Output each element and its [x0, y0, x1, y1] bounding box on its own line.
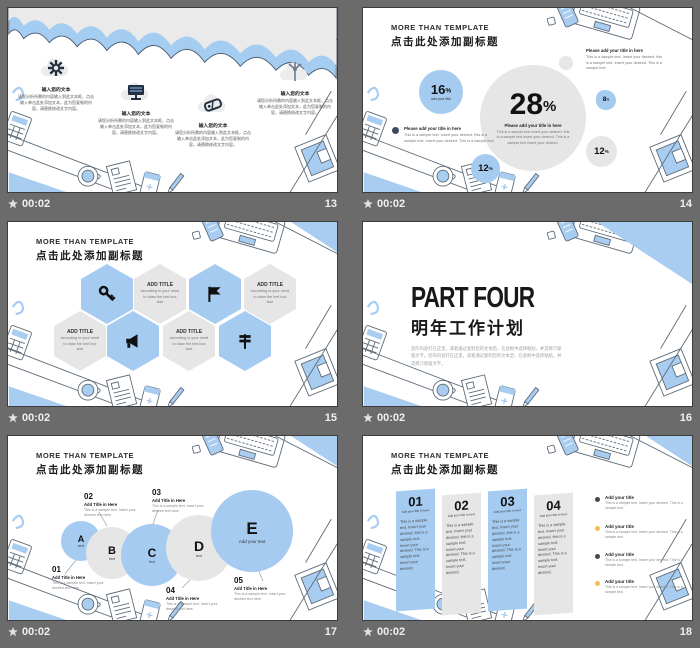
- slide-cell-16: PART FOUR 明年工作计划 您的内容打在这里，或者通过复制您的文本后，在此…: [362, 221, 693, 427]
- slide-sorter-grid: 输入您的文本 请您分析所需的内容输入到此文本框，点击输入单击此处添加文本，此为您…: [0, 0, 700, 648]
- timeline-label-01: 01 Add Title in Here This is a sample te…: [52, 565, 116, 592]
- stat-unit: %: [543, 98, 556, 115]
- slide-thumbnail-16[interactable]: PART FOUR 明年工作计划 您的内容打在这里，或者通过复制您的文本后，在此…: [362, 221, 693, 407]
- column-number: 02: [446, 498, 477, 513]
- slide-number: 18: [680, 626, 692, 638]
- circle-label: text: [109, 557, 115, 561]
- timeline-label-03: 03 Add Title in Here This is a sample te…: [152, 488, 216, 515]
- bullet-label: Add your title: [605, 579, 687, 584]
- hex-body: according to your need to draw the text …: [140, 289, 180, 306]
- decorative-circle: [559, 56, 573, 70]
- timeline-label-04: 04 Add Title in Here This is a sample te…: [166, 586, 230, 613]
- slide-meta: 00:02 17: [7, 621, 338, 641]
- slide-title-block: MORE THAN TEMPLATE 点击此处添加副标题: [391, 451, 499, 477]
- slide-cell-18: MORE THAN TEMPLATE 点击此处添加副标题 01 Add your…: [362, 435, 693, 641]
- text-block-left: Please add your title in here This is a …: [404, 126, 496, 144]
- slide-timing: 00:02: [22, 626, 50, 638]
- step-label: Add Title in Here: [152, 498, 216, 503]
- column-04: 04 Add your title in here This is a samp…: [534, 493, 573, 616]
- slide-meta: 00:02 15: [7, 407, 338, 427]
- stat-value: 28: [510, 88, 543, 121]
- stat-body: This is a sample text insert your desire…: [495, 130, 571, 147]
- signpost-icon: [236, 332, 254, 350]
- slide-number: 13: [325, 198, 337, 210]
- circle-label: text: [196, 554, 202, 558]
- hex-body: according to your need to draw the text …: [60, 336, 100, 353]
- wind-turbine-icon: [278, 60, 312, 84]
- stat-value: 16: [431, 82, 445, 97]
- step-number: 03: [152, 488, 216, 497]
- slide-title: MORE THAN TEMPLATE: [36, 451, 144, 460]
- column-subtitle: Add your title in here: [538, 512, 569, 518]
- slide-timing: 00:02: [377, 626, 405, 638]
- block-heading: Please add your title in here: [404, 126, 496, 131]
- stat-circle-28: 28% Please add your title in here This i…: [480, 65, 586, 171]
- stat-circle-12-gray: 12%: [586, 136, 617, 167]
- column-01: 01 Add your title in here This is a samp…: [396, 489, 435, 612]
- slide-timing: 00:02: [377, 198, 405, 210]
- column-subtitle: Add your title in here: [492, 508, 523, 514]
- section-title: PART FOUR: [411, 284, 534, 313]
- timeline-label-02: 02 Add Title in Here This is a sample te…: [84, 492, 148, 519]
- step-body: This is a sample text. Insert your desir…: [84, 508, 148, 519]
- corner-triangle: [291, 222, 337, 252]
- hex-body: according to your need to draw the text …: [250, 289, 290, 306]
- column-number: 01: [400, 494, 431, 509]
- slide-cell-13: 输入您的文本 请您分析所需的内容输入到此文本框，点击输入单击此处添加文本，此为您…: [7, 7, 338, 213]
- column-subtitle: Add your title in here: [446, 512, 477, 518]
- slide-thumbnail-18[interactable]: MORE THAN TEMPLATE 点击此处添加副标题 01 Add your…: [362, 435, 693, 621]
- slide-title: MORE THAN TEMPLATE: [36, 237, 144, 246]
- step-body: This is a sample text. Insert your desir…: [52, 581, 116, 592]
- circle-letter: A: [78, 534, 85, 544]
- slide-subtitle: 点击此处添加副标题: [36, 248, 144, 263]
- column-body: This is a sample text. Insert your desir…: [446, 522, 477, 577]
- stat-circle-12-blue: 12%: [471, 154, 500, 183]
- feature-item: 输入您的文本 请您分析所需的内容输入到此文本框，点击输入单击此处添加文本，此为您…: [257, 60, 333, 116]
- circle-label: Add your text: [239, 539, 266, 544]
- slide-timing: 00:02: [22, 198, 50, 210]
- column-subtitle: Add your title in here: [400, 508, 431, 514]
- bullet-label: Add your title: [605, 495, 687, 500]
- bullet-body: This is a sample text. Insert your desir…: [605, 585, 687, 596]
- slide-subtitle: 点击此处添加副标题: [391, 462, 499, 477]
- feature-item: 输入您的文本 请您分析所需的内容输入到此文本框，点击输入单击此处添加文本，此为您…: [18, 56, 94, 112]
- stat-unit: %: [489, 167, 493, 172]
- block-body: This is a sample text. Insert your desir…: [586, 55, 664, 72]
- bullet-item-2: Add your title This is a sample text. In…: [605, 524, 687, 541]
- slide-cell-17: MORE THAN TEMPLATE 点击此处添加副标题 A text B te…: [7, 435, 338, 641]
- hex-title: ADD TITLE: [176, 329, 202, 335]
- bullet-body: This is a sample text. Insert your desir…: [605, 558, 687, 569]
- block-heading: Please add your title in here: [586, 48, 664, 53]
- hex-title: ADD TITLE: [257, 282, 283, 288]
- item-title: 输入您的文本: [18, 86, 94, 93]
- stat-circle-8: 8%: [596, 90, 616, 110]
- slide-cell-15: MORE THAN TEMPLATE 点击此处添加副标题 ADD TITLE a…: [7, 221, 338, 427]
- timeline-label-05: 05 Add Title in Here This is a sample te…: [234, 576, 298, 603]
- bullet-label: Add your title: [605, 524, 687, 529]
- bullet-item-4: Add your title This is a sample text. In…: [605, 579, 687, 596]
- slide-meta: 00:02 16: [362, 407, 693, 427]
- step-label: Add Title in Here: [52, 575, 116, 580]
- flag-icon: [206, 285, 224, 303]
- feature-item: 输入您的文本 请您分析所需的内容输入到此文本框，点击输入单击此处添加文本，此为您…: [98, 80, 174, 136]
- text-block-right: Please add your title in here This is a …: [586, 48, 664, 72]
- circle-label: text: [149, 560, 155, 564]
- megaphone-icon: [124, 332, 142, 350]
- slide-number: 17: [325, 626, 337, 638]
- step-number: 04: [166, 586, 230, 595]
- slide-subtitle: 点击此处添加副标题: [391, 34, 499, 49]
- circle-letter: D: [194, 538, 204, 554]
- stat-value: 12: [594, 146, 605, 157]
- corner-triangle: [597, 222, 692, 284]
- bullet-dot: [392, 127, 399, 134]
- transition-star-icon: [363, 199, 373, 209]
- circle-label: text: [78, 544, 84, 548]
- item-title: 输入您的文本: [175, 122, 251, 129]
- circle-letter: C: [148, 546, 157, 560]
- stat-circle-16: 16% add your title: [419, 70, 463, 114]
- slide-thumbnail-15[interactable]: MORE THAN TEMPLATE 点击此处添加副标题 ADD TITLE a…: [7, 221, 338, 407]
- transition-star-icon: [8, 199, 18, 209]
- slide-cell-14: MORE THAN TEMPLATE 点击此处添加副标题 16% add you…: [362, 7, 693, 213]
- step-number: 01: [52, 565, 116, 574]
- slide-timing: 00:02: [22, 412, 50, 424]
- step-number: 05: [234, 576, 298, 585]
- stat-label: add your title: [431, 97, 451, 101]
- step-label: Add Title in Here: [166, 596, 230, 601]
- slide-title-block: MORE THAN TEMPLATE 点击此处添加副标题: [36, 237, 144, 263]
- feature-item: 输入您的文本 请您分析所需的内容输入到此文本框，点击输入单击此处添加文本，此为您…: [175, 92, 251, 148]
- item-body: 请您分析所需的内容输入到此文本框，点击输入单击此处添加文本，此为您复制的内容，请…: [175, 130, 251, 148]
- slide-meta: 00:02 14: [362, 193, 693, 213]
- stat-unit: %: [605, 150, 609, 155]
- stat-value: 12: [478, 163, 489, 174]
- circle-letter: E: [246, 519, 257, 539]
- hex-title: ADD TITLE: [147, 282, 173, 288]
- column-body: This is a sample text. Insert your desir…: [400, 518, 431, 573]
- block-body: This is a sample text. Insert your desir…: [404, 133, 496, 144]
- slide-title-block: MORE THAN TEMPLATE 点击此处添加副标题: [391, 23, 499, 49]
- step-number: 02: [84, 492, 148, 501]
- bullet-dot: [595, 497, 600, 502]
- section-body: 您的内容打在这里，或者通过复制您的文本后，在此框中选择粘贴，并选择只保留文字。您…: [411, 345, 563, 367]
- section-title-block: PART FOUR 明年工作计划 您的内容打在这里，或者通过复制您的文本后，在此…: [411, 284, 569, 367]
- bullet-dot: [595, 581, 600, 586]
- slide-number: 15: [325, 412, 337, 424]
- bullet-item-1: Add your title This is a sample text. In…: [605, 495, 687, 512]
- stat-unit: %: [606, 97, 609, 101]
- slide-subtitle: 点击此处添加副标题: [36, 462, 144, 477]
- transition-star-icon: [363, 627, 373, 637]
- key-icon: [98, 285, 116, 303]
- column-body: This is a sample text. Insert your desir…: [538, 522, 569, 577]
- slide-title: MORE THAN TEMPLATE: [391, 451, 499, 460]
- stat-heading: Please add your title in here: [504, 123, 561, 128]
- section-heading: 明年工作计划: [411, 314, 569, 339]
- column-number: 03: [492, 494, 523, 509]
- column-number: 04: [538, 498, 569, 513]
- circle-letter: B: [108, 545, 116, 557]
- timeline-circle-e: E Add your text: [211, 490, 293, 572]
- slide-title-block: MORE THAN TEMPLATE 点击此处添加副标题: [36, 451, 144, 477]
- column-body: This is a sample text. Insert your desir…: [492, 518, 523, 573]
- bullet-dot: [595, 526, 600, 531]
- slide-title: MORE THAN TEMPLATE: [391, 23, 499, 32]
- slide-timing: 00:02: [377, 412, 405, 424]
- item-title: 输入您的文本: [98, 110, 174, 117]
- corner-triangle: [646, 436, 692, 466]
- slide-meta: 00:02 18: [362, 621, 693, 641]
- gear-icon: [39, 56, 73, 80]
- item-title: 输入您的文本: [257, 90, 333, 97]
- item-body: 请您分析所需的内容输入到此文本框，点击输入单击此处添加文本，此为您复制的内容，请…: [257, 98, 333, 116]
- step-body: This is a sample text. Insert your desir…: [166, 602, 230, 613]
- slide-number: 16: [680, 412, 692, 424]
- slide-meta: 00:02 13: [7, 193, 338, 213]
- step-label: Add Title in Here: [84, 502, 148, 507]
- stat-unit: %: [445, 88, 451, 95]
- step-label: Add Title in Here: [234, 586, 298, 591]
- bullet-dot: [595, 554, 600, 559]
- slide-thumbnail-13[interactable]: 输入您的文本 请您分析所需的内容输入到此文本框，点击输入单击此处添加文本，此为您…: [7, 7, 338, 193]
- transition-star-icon: [8, 413, 18, 423]
- item-body: 请您分析所需的内容输入到此文本框，点击输入单击此处添加文本，此为您复制的内容，请…: [98, 118, 174, 136]
- bullet-body: This is a sample text. Insert your desir…: [605, 530, 687, 541]
- step-body: This is a sample text. Insert your desir…: [234, 592, 298, 603]
- column-03: 03 Add your title in here This is a samp…: [488, 489, 527, 612]
- monitor-icon: [119, 80, 153, 104]
- slide-thumbnail-17[interactable]: MORE THAN TEMPLATE 点击此处添加副标题 A text B te…: [7, 435, 338, 621]
- tag-icon: [196, 92, 230, 116]
- bullet-body: This is a sample text. Insert your desir…: [605, 501, 687, 512]
- item-body: 请您分析所需的内容输入到此文本框，点击输入单击此处添加文本，此为您复制的内容，请…: [18, 94, 94, 112]
- transition-star-icon: [8, 627, 18, 637]
- slide-number: 14: [680, 198, 692, 210]
- slide-thumbnail-14[interactable]: MORE THAN TEMPLATE 点击此处添加副标题 16% add you…: [362, 7, 693, 193]
- bullet-label: Add your title: [605, 552, 687, 557]
- hex-body: according to your need to draw the text …: [169, 336, 209, 353]
- bullet-item-3: Add your title This is a sample text. In…: [605, 552, 687, 569]
- transition-star-icon: [363, 413, 373, 423]
- hex-title: ADD TITLE: [67, 329, 93, 335]
- step-body: This is a sample text. Insert your desir…: [152, 504, 216, 515]
- column-02: 02 Add your title in here This is a samp…: [442, 493, 481, 616]
